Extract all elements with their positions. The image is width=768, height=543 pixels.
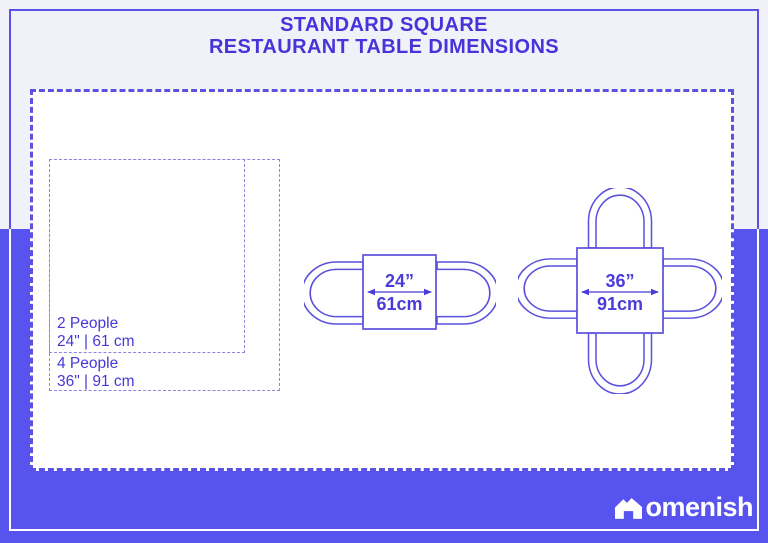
legend-2-people-label: 2 People bbox=[57, 315, 135, 333]
chair-icon bbox=[589, 333, 652, 394]
title-line-2: RESTAURANT TABLE DIMENSIONS bbox=[0, 36, 768, 58]
large-table-diagram: 36” 91cm bbox=[518, 188, 722, 394]
small-table-diagram: 24” 61cm bbox=[304, 250, 496, 334]
infographic-page: STANDARD SQUARE RESTAURANT TABLE DIMENSI… bbox=[0, 0, 768, 543]
chair-icon bbox=[589, 188, 652, 248]
legend-2-people: 2 People 24" | 61 cm bbox=[57, 315, 135, 352]
small-table-cm: 61cm bbox=[376, 294, 422, 314]
legend-4-people-label: 4 People bbox=[57, 355, 135, 373]
page-title: STANDARD SQUARE RESTAURANT TABLE DIMENSI… bbox=[0, 14, 768, 58]
brand-logo: omenish bbox=[615, 494, 753, 521]
legend-2-people-dimension: 24" | 61 cm bbox=[57, 333, 135, 351]
large-table-inches: 36” bbox=[605, 271, 634, 291]
title-line-1: STANDARD SQUARE bbox=[0, 14, 768, 36]
legend-4-people: 4 People 36" | 91 cm bbox=[57, 355, 135, 392]
legend-4-people-dimension: 36" | 91 cm bbox=[57, 373, 135, 391]
brand-name: omenish bbox=[645, 494, 753, 521]
large-table-cm: 91cm bbox=[597, 294, 643, 314]
small-table-inches: 24” bbox=[385, 271, 414, 291]
house-icon bbox=[615, 496, 642, 519]
chair-icon bbox=[663, 259, 722, 318]
chair-icon bbox=[437, 262, 496, 324]
chair-icon bbox=[304, 262, 363, 324]
chair-icon bbox=[518, 259, 577, 318]
